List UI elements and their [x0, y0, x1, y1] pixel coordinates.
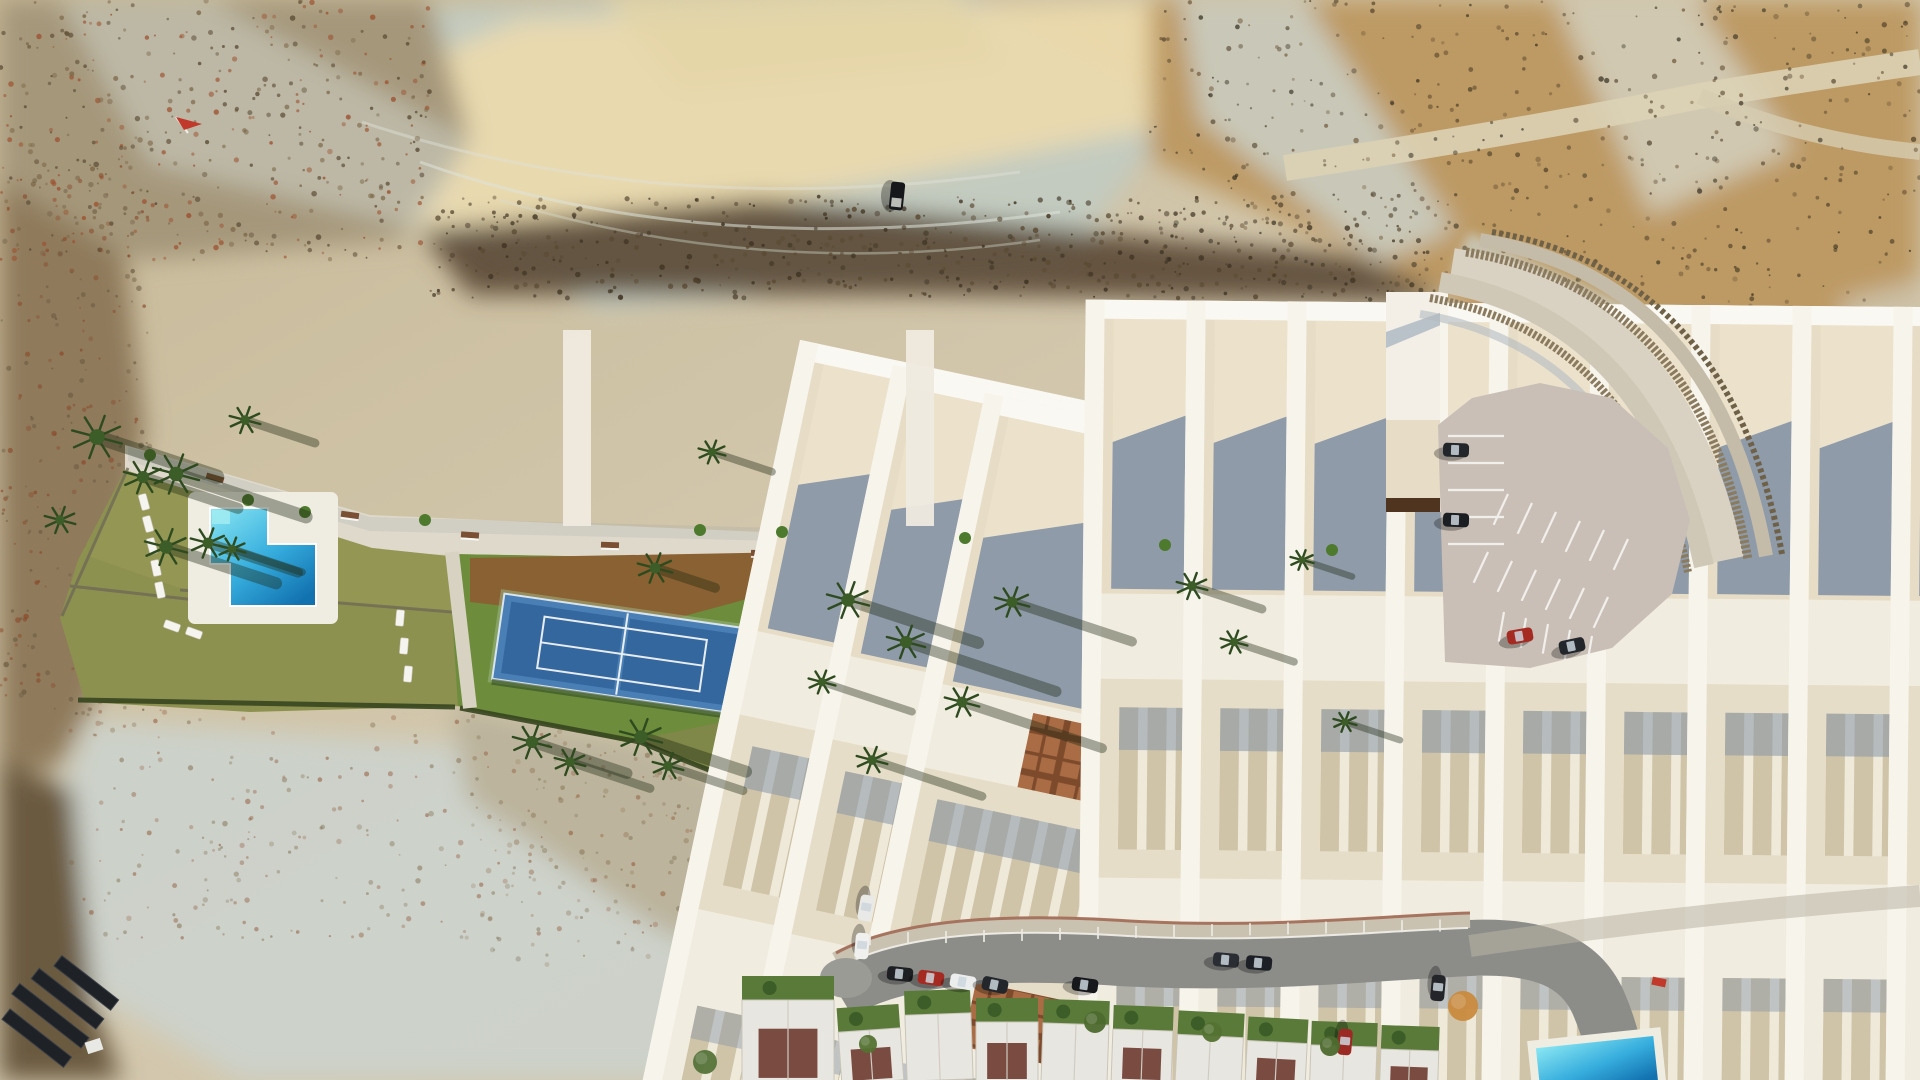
car-on-track — [881, 180, 905, 212]
planter-bush — [419, 514, 431, 526]
tree — [1202, 1022, 1222, 1042]
house — [1245, 1016, 1309, 1080]
planter-bush — [959, 532, 971, 544]
house — [1111, 1005, 1174, 1080]
tree — [693, 1050, 717, 1074]
sun-lounger — [395, 610, 404, 627]
planter-bush — [1326, 544, 1338, 556]
tree — [1320, 1036, 1340, 1056]
house — [976, 998, 1038, 1080]
house — [1175, 1010, 1245, 1080]
community-building-roof — [1386, 292, 1448, 420]
building-passage — [906, 330, 934, 526]
bench — [461, 531, 480, 540]
planter-bush — [1159, 539, 1171, 551]
tree — [1448, 991, 1478, 1021]
aerial-render-image — [0, 0, 1920, 1080]
scene-canvas — [0, 0, 1920, 1080]
building-passage — [563, 330, 591, 526]
planter-bush — [776, 526, 788, 538]
tree — [1084, 1011, 1106, 1033]
house — [1379, 1025, 1439, 1080]
house — [1041, 999, 1110, 1080]
bench — [601, 542, 619, 551]
sun-lounger — [403, 666, 412, 683]
tree — [859, 1035, 877, 1053]
sun-lounger — [399, 638, 408, 655]
house — [904, 989, 973, 1080]
planter-bush — [694, 524, 706, 536]
house — [742, 976, 834, 1080]
